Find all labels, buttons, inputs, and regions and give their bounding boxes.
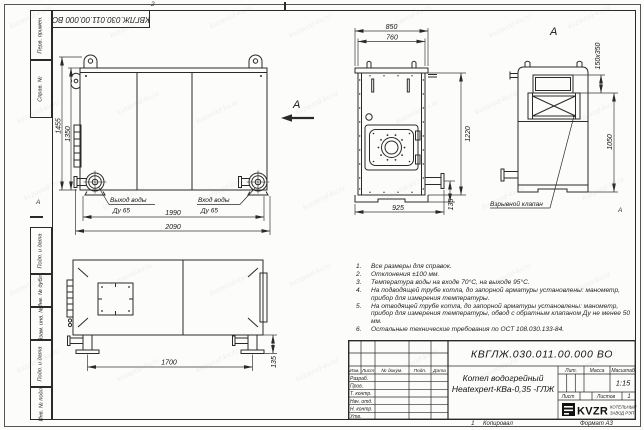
front-side-flange — [425, 174, 444, 189]
scale-label: Масштаб — [611, 368, 635, 374]
dim-850: 850 — [386, 24, 398, 31]
dim-2090: 2090 — [164, 224, 181, 231]
scale-value: 1:15 — [616, 379, 631, 388]
inlet-label: Вход воды — [198, 196, 230, 204]
view-side: 1455 1350 1990 2090 Выход воды Ду 65 Вхо… — [52, 48, 322, 243]
rear-lug-left — [525, 61, 530, 67]
note-item: 2.Отклонения ±100 мм. — [356, 271, 634, 279]
boiler-side-outline — [71, 55, 267, 190]
sight-glass — [366, 114, 372, 120]
side-eyelet — [71, 73, 80, 88]
dim-135-front: 135 — [448, 199, 455, 211]
view-rear: А 150х350 10 — [488, 20, 644, 220]
dim-925: 925 — [392, 205, 404, 212]
boiler-top-outline — [67, 260, 267, 335]
front-base — [355, 195, 428, 202]
view-a-title: А — [549, 26, 557, 38]
sidebar-cell-inv-podl: Инв. № подл. — [30, 387, 52, 420]
title-block: КВГЛЖ.030.011.00.000 ВО Изм. Лист № доку… — [348, 340, 636, 420]
zone-tick-left — [30, 216, 43, 218]
format-label: Формат А3 — [580, 421, 613, 427]
valve-label: Взрывной клапан — [490, 200, 543, 208]
dim-1220: 1220 — [465, 126, 472, 142]
zone-marker-bottom: 1 — [471, 420, 475, 427]
water-inlet-port — [239, 171, 270, 196]
boiler-rear-outline — [510, 61, 588, 192]
front-dimensions — [355, 28, 466, 215]
company-name-line1: КОТЕЛЬНЫЙ — [610, 405, 636, 410]
note-item: 3.Температура воды на входе 70°С, на вых… — [356, 279, 634, 287]
dim-1455: 1455 — [56, 118, 63, 134]
burner-door — [365, 125, 420, 170]
row-tkontr: Т. контр. — [350, 391, 372, 397]
sidebar-cell-perv-primen: Перв. примен. — [30, 10, 52, 60]
dim-1050: 1050 — [607, 134, 614, 150]
kvzr-logo: KVZR КОТЕЛЬНЫЙ ЗАВОД РЭП — [562, 403, 636, 418]
col-docnum: № докум. — [381, 368, 402, 374]
col-podp: Подп. — [414, 368, 427, 374]
product-title-line1: Котел водогрейный — [463, 373, 544, 383]
note-item: 5.На отводящей трубе котла, до запорной … — [356, 303, 634, 326]
note-item: 1.Все размеры для справок. — [356, 263, 634, 271]
sidebar-cell-podp-data-1: Подп. и дата — [30, 227, 52, 274]
bolt-dots — [359, 75, 424, 193]
dim-150x350: 150х350 — [595, 42, 602, 69]
sheets-value: 1 — [627, 394, 630, 400]
dim-135-top: 135 — [271, 356, 278, 368]
row-nachotd: Нач. отд. — [350, 399, 372, 405]
dim-1350: 1350 — [65, 126, 72, 142]
view-front: 850 760 1220 925 135 — [340, 20, 490, 220]
col-izm: Изм. — [349, 368, 359, 374]
drawing-sheet: kvzavod-kv.rukvzavod-kv.rukvzavod-kv.ruk… — [0, 0, 644, 430]
note-item: 4.На подводящей трубе котла, до запорной… — [356, 287, 634, 302]
mass-label: Масса — [590, 368, 605, 374]
zone-marker-top: 2 — [151, 1, 155, 8]
kvzr-logo-text: KVZR — [577, 406, 608, 418]
sheets-label: Листов — [596, 394, 616, 400]
technical-notes: 1.Все размеры для справок. 2.Отклонения … — [356, 263, 634, 334]
side-dimensions — [59, 57, 270, 235]
inlet-dn-label: Ду 65 — [200, 208, 218, 215]
rear-side-flange — [501, 169, 518, 181]
sidebar-cell-podp-data-2: Подп. и дата — [30, 340, 52, 387]
row-utv: Утв. — [350, 414, 361, 420]
dim-760: 760 — [386, 35, 398, 42]
explosion-valve — [528, 93, 580, 119]
col-data: Дата — [432, 368, 446, 374]
doc-number: КВГЛЖ.030.011.00.000 ВО — [471, 349, 613, 361]
lifting-lug-right — [249, 55, 262, 68]
top-hatch — [98, 283, 133, 315]
row-razrab: Разраб. — [350, 376, 368, 382]
row-prov: Пров. — [350, 384, 363, 390]
outlet-dn-label: Ду 65 — [112, 208, 130, 215]
zone-marker-left: А — [36, 199, 40, 206]
lifting-lug-left — [84, 55, 97, 68]
view-a-arrow-label: А — [292, 99, 300, 111]
row-nkontr: Н. контр. — [350, 407, 373, 413]
view-a-arrow — [281, 114, 314, 122]
water-outlet-port — [74, 171, 107, 196]
view-top: 1700 135 — [52, 255, 297, 380]
sidebar-cell-sprav-no: Справ. № — [30, 60, 52, 118]
doc-number-top-box: КВГЛЖ.030.011.00.000 ВО — [52, 10, 150, 28]
boiler-front-outline — [355, 61, 437, 202]
front-lug-left — [367, 61, 371, 68]
dim-1990: 1990 — [165, 210, 181, 217]
product-title-line2: Heatexpert-КВа-0,35 -ГЛЖ — [452, 384, 556, 394]
note-item: 6.Остальные технические требования по ОС… — [356, 326, 634, 334]
rear-lug-right — [577, 61, 582, 67]
sheet-label: Лист — [561, 394, 575, 400]
zone-tick-top — [284, 2, 286, 11]
sidebar-cell-inv-dubl: Инв. № дубл. — [30, 274, 52, 307]
supports — [68, 335, 265, 354]
sidebar-cell-vzam-inv: Взам. инв. № — [30, 307, 52, 340]
doc-number-top: КВГЛЖ.030.011.00.000 ВО — [52, 15, 150, 24]
dim-1700: 1700 — [161, 360, 177, 367]
col-list: Лист — [361, 368, 374, 374]
valve-callout — [490, 115, 575, 208]
company-name-line2: ЗАВОД РЭП — [610, 411, 635, 416]
lit-label: Лит. — [564, 368, 577, 374]
front-lug-right — [412, 61, 416, 68]
copied-label: Копировал — [483, 421, 513, 427]
outlet-label: Выход воды — [110, 196, 147, 204]
